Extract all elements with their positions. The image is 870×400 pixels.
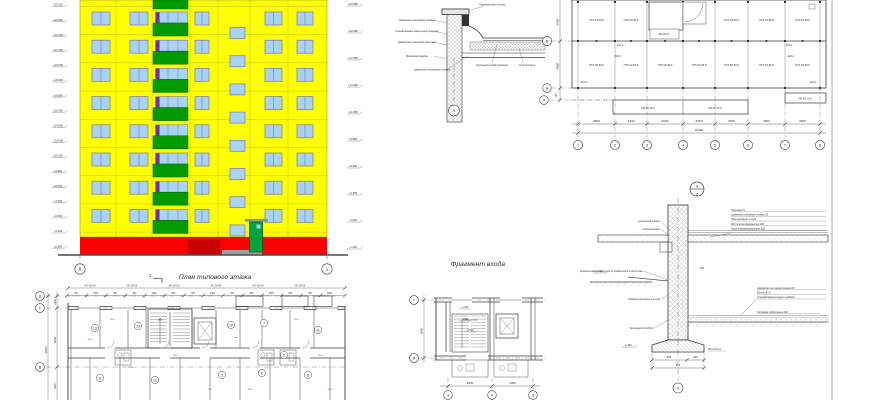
axis-label: В bbox=[546, 38, 549, 43]
gravel-dot bbox=[706, 319, 707, 320]
dim-text: 750 bbox=[113, 293, 118, 295]
level-mark-tick bbox=[360, 58, 363, 60]
level-mark-value: -0.600 bbox=[466, 329, 474, 332]
wall-panel-label: НС 30.9.8 bbox=[253, 284, 264, 287]
panel-label: ПТК 63-36-8 bbox=[759, 63, 774, 67]
panel-label: ПТК 72-36-8 bbox=[759, 18, 774, 22]
balcony-window bbox=[160, 97, 188, 108]
fixture bbox=[261, 353, 265, 357]
gravel-dot bbox=[711, 319, 712, 320]
bathroom bbox=[258, 350, 274, 365]
dim-text: 900 bbox=[250, 293, 255, 295]
panel-label: ПТК 48-36-8 bbox=[795, 63, 810, 67]
dim-text: 3600 bbox=[593, 119, 600, 123]
level-mark-value: +11.980 bbox=[348, 110, 358, 114]
dim-text: 750 bbox=[191, 293, 196, 295]
room-number: 10 bbox=[229, 323, 233, 327]
stair-window bbox=[230, 84, 245, 95]
level-mark-value: +9.800 bbox=[54, 169, 63, 173]
door-gap bbox=[300, 347, 310, 348]
axis-label: 4 bbox=[491, 393, 493, 397]
level-mark-value: -1.200 bbox=[461, 306, 469, 309]
level-mark-tick bbox=[65, 140, 68, 142]
dim-text: 3300 bbox=[509, 381, 516, 385]
dim-text: 1500 bbox=[93, 293, 99, 295]
apron-slope bbox=[628, 277, 668, 281]
ground-hatch bbox=[800, 322, 804, 327]
level-mark-tick bbox=[65, 80, 68, 82]
axis-label: В bbox=[39, 365, 42, 369]
dim-text: 3600 bbox=[662, 119, 669, 123]
dim-text: 900 bbox=[234, 337, 238, 339]
fixture bbox=[508, 364, 516, 371]
ground-hatch bbox=[816, 322, 820, 327]
level-mark-tick bbox=[65, 186, 68, 188]
dim-text: 2100 bbox=[128, 367, 134, 369]
dim-text: 200 bbox=[555, 93, 558, 98]
level-mark-value: +21.000 bbox=[53, 48, 63, 52]
ground-hatch bbox=[808, 322, 812, 327]
anchor-label: АКЛ-2 bbox=[614, 55, 622, 58]
layer-label: Линолеум 5 bbox=[730, 209, 745, 212]
gravel-dot bbox=[776, 319, 777, 320]
stair-window bbox=[230, 169, 245, 180]
ground-hatch bbox=[728, 322, 732, 327]
bay bbox=[282, 296, 308, 307]
axis-label: А bbox=[453, 108, 456, 113]
balcony bbox=[153, 79, 188, 92]
dim-text: 1500 bbox=[210, 293, 216, 295]
dim-text: 750 bbox=[74, 293, 79, 295]
axis-label: 5 bbox=[532, 393, 534, 397]
fixture bbox=[118, 353, 122, 357]
dim-text: 1500 bbox=[268, 293, 274, 295]
ground-hatch bbox=[688, 322, 692, 327]
ground-hatch bbox=[652, 282, 656, 286]
leader bbox=[740, 299, 757, 316]
parapet-detail: Парапетная плитаЦементно-песчаная стяжка… bbox=[394, 3, 545, 123]
panel-label: ПТК 53-36-8 bbox=[795, 18, 810, 22]
building-elevation: 81 bbox=[58, 0, 348, 274]
stair-arrow bbox=[158, 318, 162, 344]
level-mark-value: -2.150 bbox=[624, 344, 632, 347]
level-mark-value: +22.400 bbox=[53, 33, 63, 37]
dim-text: 2800 bbox=[54, 383, 57, 389]
ground-hatch bbox=[603, 282, 607, 286]
level-mark-tick bbox=[65, 65, 68, 67]
door-gap bbox=[160, 357, 170, 358]
level-mark-value: -1.200 bbox=[349, 245, 357, 249]
ground-hatch bbox=[760, 322, 764, 327]
joint-dot bbox=[682, 40, 684, 42]
level-mark-tick bbox=[360, 247, 363, 249]
joint-dot bbox=[614, 1, 616, 3]
vestibule bbox=[494, 360, 528, 377]
dim-text: 1200 bbox=[328, 389, 334, 391]
dim-text: 6000 bbox=[420, 327, 424, 334]
balcony-door-pane bbox=[156, 181, 160, 192]
gravel-dot bbox=[796, 319, 797, 320]
level-mark-value: +18.200 bbox=[53, 78, 63, 82]
stair-window bbox=[230, 197, 245, 208]
room-number: 8 bbox=[99, 376, 101, 380]
dim-text: 900 bbox=[208, 389, 212, 391]
dim-text: 750 bbox=[308, 293, 313, 295]
ground-hatch bbox=[744, 322, 748, 327]
detail-label: Бетонный столбик bbox=[630, 327, 654, 330]
level-mark-tick bbox=[65, 110, 68, 112]
axis-label: 3 bbox=[447, 393, 449, 397]
stair-window bbox=[230, 225, 245, 236]
gravel-dot bbox=[771, 319, 772, 320]
joint-dot bbox=[698, 40, 700, 42]
panel-label: ПТК 60-30-8 bbox=[624, 18, 639, 22]
panel-label: ПБ 66-12-8 bbox=[641, 106, 655, 110]
dim-text: 1500 bbox=[151, 293, 157, 295]
dim-text: 1500 bbox=[327, 293, 333, 295]
dim-text: 900 bbox=[289, 293, 294, 295]
drawing-sheet: 81 +25.200+23.800+22.400+21.000+19.600+1… bbox=[0, 0, 870, 400]
balcony-door-pane bbox=[156, 40, 160, 51]
balcony-window bbox=[160, 125, 188, 136]
ground-hatch bbox=[631, 282, 635, 286]
typical-floor-plan: ДГВ1310107118115685НС 30.9.8НС 30.9.8НС … bbox=[36, 284, 347, 400]
ground-hatch bbox=[696, 322, 700, 327]
level-mark-tick bbox=[65, 231, 68, 233]
gravel-dot bbox=[746, 319, 747, 320]
bay bbox=[236, 296, 263, 307]
ground-hatch bbox=[792, 322, 796, 327]
ground-hatch bbox=[589, 282, 593, 286]
level-mark-tick bbox=[360, 139, 363, 141]
layer-label: Пароизоляция 1 слой bbox=[731, 218, 757, 221]
slab-layout-plan: ПТК 63-36-8ПТК 60-30-8ЛМ 28-11ПТК 63-36-… bbox=[540, 0, 826, 150]
balcony-door-pane bbox=[156, 12, 160, 23]
level-mark-tick bbox=[65, 95, 68, 97]
gravel-dot bbox=[786, 319, 787, 320]
door-gap bbox=[105, 347, 115, 348]
level-mark-value: -0.020 bbox=[349, 218, 357, 222]
ground-hatch bbox=[704, 322, 708, 327]
dim-text: 1500 bbox=[173, 355, 179, 357]
fixture bbox=[289, 353, 294, 361]
joint-dot bbox=[766, 40, 768, 42]
level-mark-value: +2.800 bbox=[54, 244, 63, 248]
leader bbox=[492, 44, 497, 63]
layer-label: Бетон В7,5 bbox=[757, 292, 771, 295]
layer-label: Плита минераловатная 100 bbox=[731, 227, 765, 230]
layer-label: Утрамбованный грунт щебнем bbox=[757, 296, 795, 299]
gravel-dot bbox=[731, 319, 732, 320]
section-mark-label: 1 bbox=[149, 273, 152, 278]
ground-hatch bbox=[638, 282, 642, 286]
detail-label: Фасадная панель bbox=[406, 54, 428, 58]
anchor-label: АКЛ-2 bbox=[616, 44, 624, 47]
stair-opening bbox=[649, 2, 683, 30]
room-number: 8 bbox=[307, 373, 309, 377]
detail-label: Рулонный ковёр (кровля) bbox=[476, 63, 508, 67]
joint-dot bbox=[731, 40, 733, 42]
dim-text: 300 bbox=[693, 355, 698, 359]
foundation-wall bbox=[668, 205, 688, 340]
stair-window bbox=[230, 140, 245, 151]
door-gap bbox=[200, 347, 210, 348]
screed-curve bbox=[469, 26, 545, 38]
gravel-dot bbox=[696, 319, 697, 320]
anchor-label: АКЛ-2 bbox=[809, 81, 817, 84]
joint-dot bbox=[784, 40, 786, 42]
dim-text: 1200 bbox=[294, 319, 300, 321]
ground-hatch bbox=[624, 282, 628, 286]
balcony bbox=[153, 23, 188, 36]
ground-hatch bbox=[736, 322, 740, 327]
dim-text: 300 bbox=[700, 267, 705, 270]
room-number: 11 bbox=[316, 328, 320, 332]
door-swing bbox=[302, 341, 309, 348]
fixture bbox=[458, 366, 463, 371]
ground-hatch bbox=[659, 282, 663, 286]
foundation-detail: 32Линолеум 5Цементно-песчаная стяжка 20П… bbox=[579, 182, 828, 393]
gravel-dot bbox=[821, 319, 822, 320]
joint-dot bbox=[784, 1, 786, 3]
balcony-window bbox=[160, 12, 188, 23]
balcony-door-pane bbox=[156, 125, 160, 136]
level-mark-tick bbox=[65, 170, 68, 172]
dim-text: 3600 bbox=[763, 119, 770, 123]
detail-label: Цокольная панель bbox=[639, 220, 661, 223]
balcony bbox=[153, 0, 188, 9]
balcony-door-pane bbox=[156, 97, 160, 108]
balcony-door-pane bbox=[156, 209, 160, 220]
joint-dot bbox=[714, 1, 716, 3]
level-mark-tick bbox=[360, 4, 363, 6]
detail-label: Алюминиевый защитный фартук bbox=[394, 29, 439, 33]
joint-dot bbox=[714, 40, 716, 42]
dim-text: 1440 bbox=[54, 299, 57, 305]
balcony-window bbox=[160, 153, 188, 164]
detail-label: Парапетная плита bbox=[479, 3, 505, 7]
level-mark-value: +8.400 bbox=[54, 184, 63, 188]
gravel-dot bbox=[816, 319, 817, 320]
wall-panel-label: НС 30.9.8 bbox=[127, 284, 138, 287]
level-mark-tick bbox=[360, 31, 363, 33]
entrance-fragment-title: Фрагмент входа bbox=[451, 260, 505, 268]
joint-dot bbox=[596, 40, 598, 42]
axis-label: А bbox=[677, 386, 680, 391]
dim-text: 6000 bbox=[53, 336, 57, 343]
dim-text: 900 bbox=[133, 293, 138, 295]
ground-hatch bbox=[752, 322, 756, 327]
panel-label: ПБ 36-12-8 bbox=[798, 97, 812, 101]
anchor-label: АКЛ-2 bbox=[580, 81, 588, 84]
panel-label: ПТК 63-63-8 bbox=[624, 63, 639, 67]
level-mark-value: +25.200 bbox=[53, 3, 63, 7]
panel-label: ПБ 60-12-8 bbox=[708, 106, 722, 110]
gravel-dot bbox=[826, 319, 827, 320]
entrance-fragment-plan: ГВ-1.200-0.900-0.600360033003456000 bbox=[410, 295, 545, 399]
balcony bbox=[153, 136, 188, 149]
balcony-door-pane bbox=[156, 68, 160, 79]
level-mark-tick bbox=[65, 125, 68, 127]
level-mark-value: +20.980 bbox=[348, 29, 358, 33]
dim-text: 3600 bbox=[467, 381, 474, 385]
dim-text: 3300 bbox=[628, 119, 635, 123]
balcony-door-pane bbox=[156, 153, 160, 164]
detail-label: Утеплитель bbox=[519, 63, 536, 67]
level-mark-value: +2.980 bbox=[349, 191, 358, 195]
dim-text: 900 bbox=[676, 363, 681, 367]
entrance-canopy bbox=[245, 219, 268, 222]
level-mark-value: +17.980 bbox=[348, 56, 358, 60]
joint-dot bbox=[630, 40, 632, 42]
joint-dot bbox=[819, 1, 821, 3]
room-number: 6 bbox=[261, 371, 263, 375]
dim-text: 3600 bbox=[799, 119, 806, 123]
level-mark-tick bbox=[65, 19, 68, 21]
joint-dot bbox=[646, 40, 648, 42]
joint-dot bbox=[747, 1, 749, 3]
level-mark-value: +14.000 bbox=[53, 124, 63, 128]
dim-text: 1500 bbox=[88, 339, 94, 341]
dim-text: 300 bbox=[248, 389, 252, 391]
balcony bbox=[153, 164, 188, 177]
panel-label: ЛМ 28-11 bbox=[657, 32, 670, 36]
gravel-dot bbox=[756, 319, 757, 320]
ground-hatch bbox=[596, 282, 600, 286]
stair-window bbox=[230, 56, 245, 67]
level-mark-value: +14.980 bbox=[348, 83, 358, 87]
door-gap bbox=[300, 357, 310, 358]
joint-dot bbox=[577, 40, 579, 42]
panel-label: ПТК 63-36-8 bbox=[724, 18, 739, 22]
level-mark-value: +23.980 bbox=[348, 2, 358, 6]
panel-label: ПТК 48-36-8 bbox=[589, 63, 604, 67]
entrance-door bbox=[250, 222, 263, 252]
level-mark-value: +12.600 bbox=[53, 139, 63, 143]
level-mark-value: +15.400 bbox=[53, 108, 63, 112]
gravel-dot bbox=[736, 319, 737, 320]
joint-dot bbox=[577, 1, 579, 3]
level-mark-value: +5.600 bbox=[54, 214, 63, 218]
wall-panel-label: НС 30.9.8 bbox=[295, 284, 306, 287]
ground-hatch bbox=[712, 322, 716, 327]
door-swing bbox=[252, 341, 259, 348]
level-mark-value: +23.800 bbox=[53, 18, 63, 22]
leader bbox=[661, 295, 668, 299]
room-number: 13 bbox=[93, 326, 97, 330]
gravel-layer bbox=[688, 318, 828, 323]
stair-window bbox=[230, 28, 245, 39]
fixture bbox=[466, 364, 474, 371]
ground-hatch bbox=[768, 322, 772, 327]
door-gap bbox=[105, 357, 115, 358]
balcony-slab bbox=[613, 100, 748, 114]
parapet-cap bbox=[442, 9, 469, 15]
door-swing bbox=[202, 341, 209, 348]
detail-label: Цементно-песчаный раствор bbox=[398, 40, 437, 44]
dim-text: 750 bbox=[230, 293, 235, 295]
balcony bbox=[153, 220, 188, 233]
level-mark-tick bbox=[65, 4, 68, 6]
joint-dot bbox=[664, 40, 666, 42]
flashing-block bbox=[462, 15, 469, 26]
dim-text: 900 bbox=[172, 293, 177, 295]
hatch-line bbox=[700, 340, 704, 344]
anchor-label: АКЛ-2 bbox=[787, 55, 795, 58]
ground-hatch bbox=[720, 322, 724, 327]
leader bbox=[654, 320, 668, 328]
door-gap bbox=[200, 357, 210, 358]
gravel-dot bbox=[791, 319, 792, 320]
balcony bbox=[153, 192, 188, 205]
dim-text: 6000 bbox=[556, 18, 560, 25]
gravel-dot bbox=[721, 319, 722, 320]
level-mark-value: -1.100 bbox=[595, 270, 603, 273]
joint-dot bbox=[646, 1, 648, 3]
ground-hatch bbox=[776, 322, 780, 327]
wall-panel-label: НС 30.9.8 bbox=[211, 284, 222, 287]
level-mark-tick bbox=[360, 220, 363, 222]
balcony-window bbox=[160, 68, 188, 79]
axis-label: Г bbox=[39, 306, 41, 310]
panel-label: ПТК 60-36-8 bbox=[724, 63, 739, 67]
architectural-drawing-sheet: 81 +25.200+23.800+22.400+21.000+19.600+1… bbox=[0, 0, 870, 400]
level-mark-tick bbox=[65, 201, 68, 203]
dim-text: 4800 bbox=[556, 62, 560, 69]
plinth-dark bbox=[188, 240, 220, 255]
room-number: 5 bbox=[283, 353, 285, 357]
detail-label: Асфальтовая отмостка по щебёночной подго… bbox=[579, 270, 644, 273]
balcony-window bbox=[160, 209, 188, 220]
level-mark-value: -0.900 bbox=[461, 318, 469, 321]
detail-label: Цементно-песчаная стяжка bbox=[399, 18, 436, 22]
stair-window bbox=[230, 112, 245, 123]
panel-label: ПТК 63-39-8 bbox=[692, 63, 707, 67]
detail-label: Обмазка битумом в 2 слоя bbox=[628, 298, 660, 301]
leader bbox=[434, 20, 447, 23]
footing-mark: ФЛ 10-12-2 bbox=[708, 348, 721, 351]
level-mark-tick bbox=[65, 35, 68, 37]
fixture bbox=[267, 353, 272, 361]
level-mark-value: +11.200 bbox=[53, 154, 63, 158]
dim-text: 3300 bbox=[728, 119, 735, 123]
ground-hatch bbox=[645, 282, 649, 286]
door-swing bbox=[107, 341, 114, 348]
room-number: 11 bbox=[153, 378, 157, 382]
panel-label: ПТК 60-36-8 bbox=[658, 63, 673, 67]
gravel-dot bbox=[726, 319, 727, 320]
gravel-dot bbox=[781, 319, 782, 320]
layer-label: Ж/б плита перекрытия 220 bbox=[730, 223, 765, 226]
leader bbox=[519, 48, 523, 63]
level-mark-value: +5.980 bbox=[349, 164, 358, 168]
gravel-dot bbox=[716, 319, 717, 320]
staircase bbox=[452, 314, 488, 352]
detail-label: Гидроизоляция bbox=[642, 228, 660, 231]
level-mark-value: +8.980 bbox=[349, 137, 358, 141]
ground-hatch bbox=[784, 322, 788, 327]
wall-panel-label: НС 30.9.8 bbox=[169, 284, 180, 287]
joint-dot bbox=[747, 40, 749, 42]
dim-text: 600 bbox=[667, 355, 672, 359]
level-mark-tick bbox=[360, 193, 363, 195]
dim-text: 11500 bbox=[44, 346, 48, 354]
dim-text: 7500 bbox=[110, 319, 116, 321]
gravel-dot bbox=[761, 319, 762, 320]
ground-hatch bbox=[617, 282, 621, 286]
small-opening bbox=[809, 4, 815, 9]
gravel-dot bbox=[766, 319, 767, 320]
